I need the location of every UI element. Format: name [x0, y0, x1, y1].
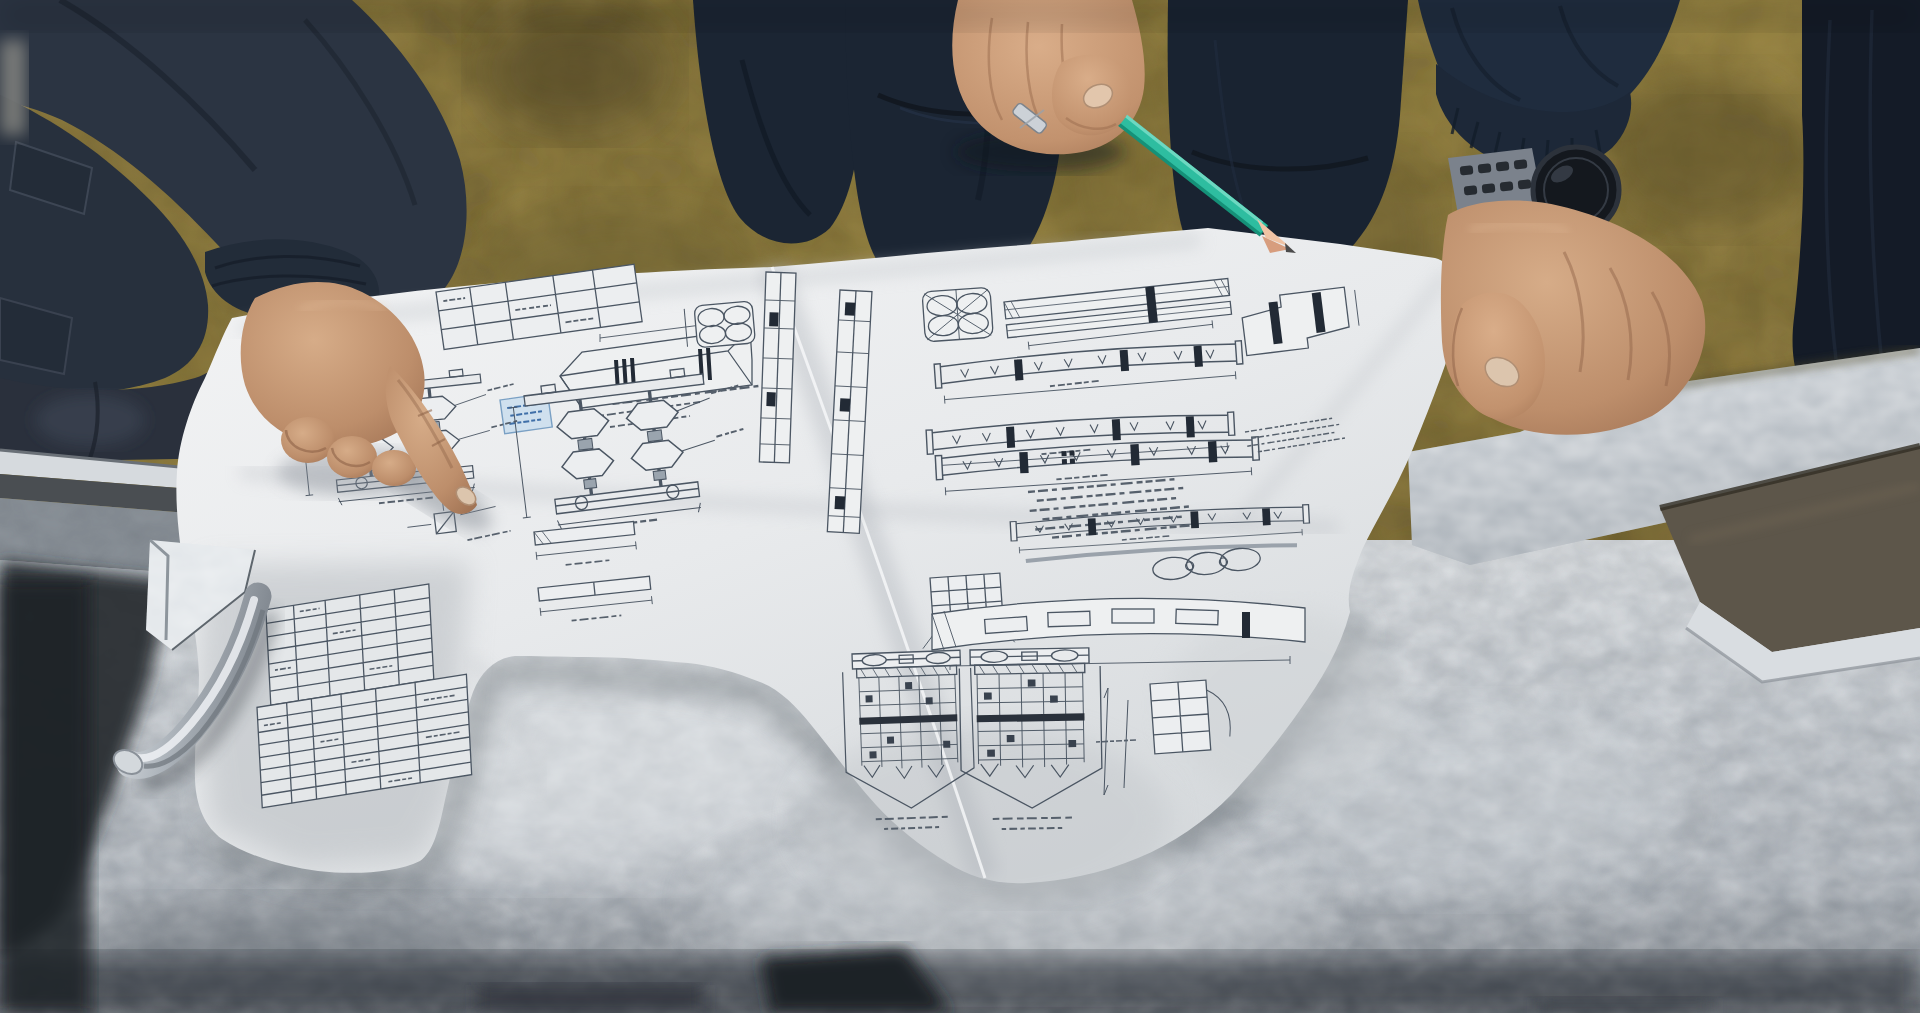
photo-root: % — [0, 0, 1920, 1013]
vignette — [0, 0, 1920, 30]
vertical-strip-1 — [759, 272, 796, 463]
ellipse-end-view-2 — [922, 287, 993, 342]
